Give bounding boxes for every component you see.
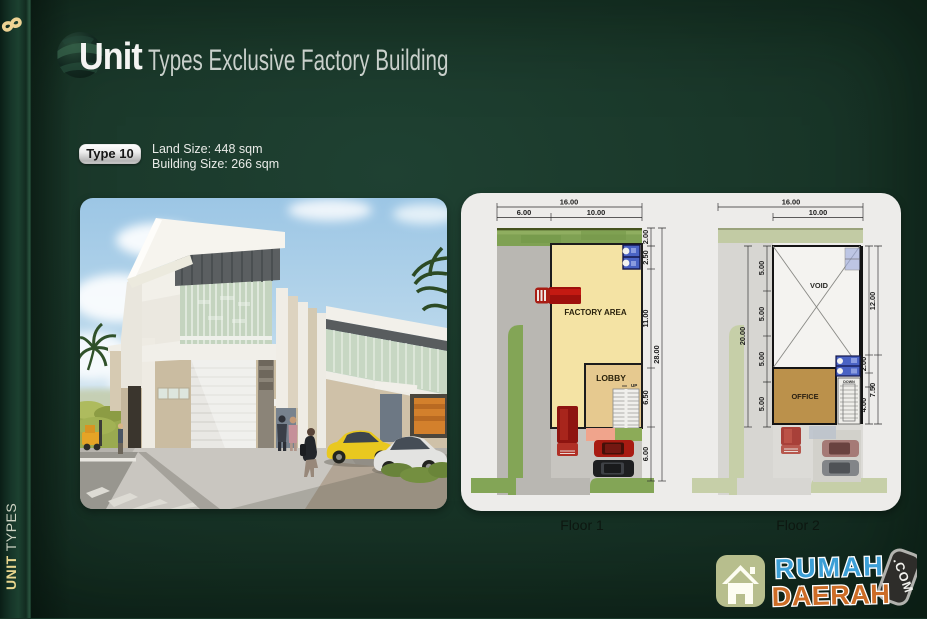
svg-text:6.50: 6.50 <box>641 390 650 404</box>
svg-text:FACTORY AREA: FACTORY AREA <box>564 308 626 317</box>
svg-text:10.00: 10.00 <box>587 208 606 217</box>
svg-text:DAERAH: DAERAH <box>771 579 890 612</box>
svg-text:2.00: 2.00 <box>641 230 650 244</box>
svg-text:OFFICE: OFFICE <box>791 392 818 401</box>
svg-text:6.00: 6.00 <box>641 447 650 461</box>
svg-text:5.00: 5.00 <box>757 352 766 366</box>
svg-text:16.00: 16.00 <box>560 198 579 207</box>
svg-text:4.00: 4.00 <box>859 398 868 412</box>
svg-text:5.00: 5.00 <box>757 307 766 321</box>
svg-text:28.00: 28.00 <box>652 345 661 364</box>
svg-text:7.50: 7.50 <box>868 383 877 397</box>
svg-text:2.50: 2.50 <box>641 250 650 264</box>
svg-text:LOBBY: LOBBY <box>596 373 626 383</box>
svg-text:16.00: 16.00 <box>782 198 801 207</box>
svg-text:12.00: 12.00 <box>868 292 877 311</box>
svg-text:10.00: 10.00 <box>809 208 828 217</box>
svg-text:6.00: 6.00 <box>517 208 531 217</box>
svg-text:5.00: 5.00 <box>757 261 766 275</box>
svg-text:20.00: 20.00 <box>738 327 747 346</box>
svg-text:11.00: 11.00 <box>641 309 650 327</box>
svg-text:5.00: 5.00 <box>757 397 766 411</box>
svg-text:VOID: VOID <box>810 281 829 290</box>
svg-text:UP: UP <box>631 383 637 388</box>
svg-text:2.00: 2.00 <box>859 357 868 371</box>
svg-text:DOWN: DOWN <box>843 380 855 384</box>
